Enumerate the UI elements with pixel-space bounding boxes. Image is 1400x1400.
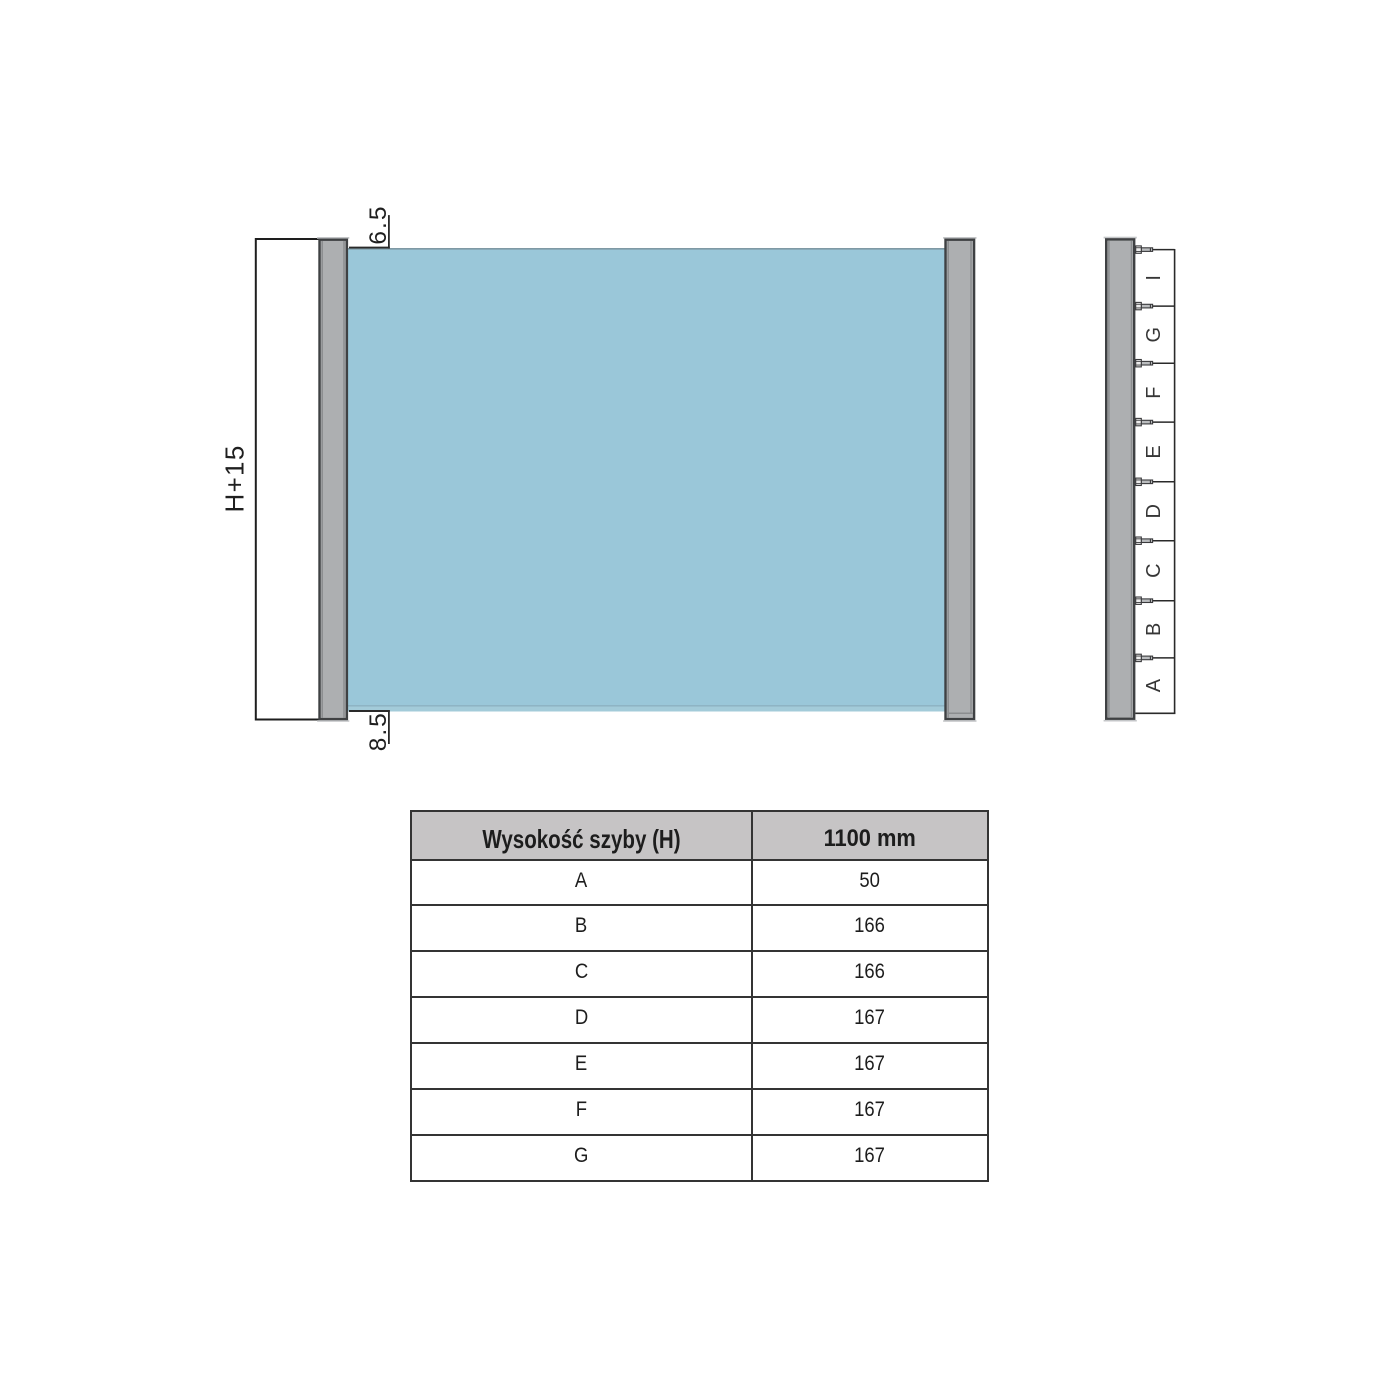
svg-text:D: D [1143,504,1165,518]
svg-text:6.5: 6.5 [365,205,392,245]
svg-text:8.5: 8.5 [365,711,392,751]
svg-text:F: F [1143,387,1165,399]
svg-text:G: G [1143,327,1165,343]
svg-text:C: C [1143,563,1165,577]
svg-text:B: B [1143,623,1165,636]
svg-text:E: E [1143,445,1165,458]
svg-text:H+15: H+15 [220,444,250,512]
svg-text:I: I [1143,275,1165,281]
svg-text:A: A [1143,678,1165,692]
